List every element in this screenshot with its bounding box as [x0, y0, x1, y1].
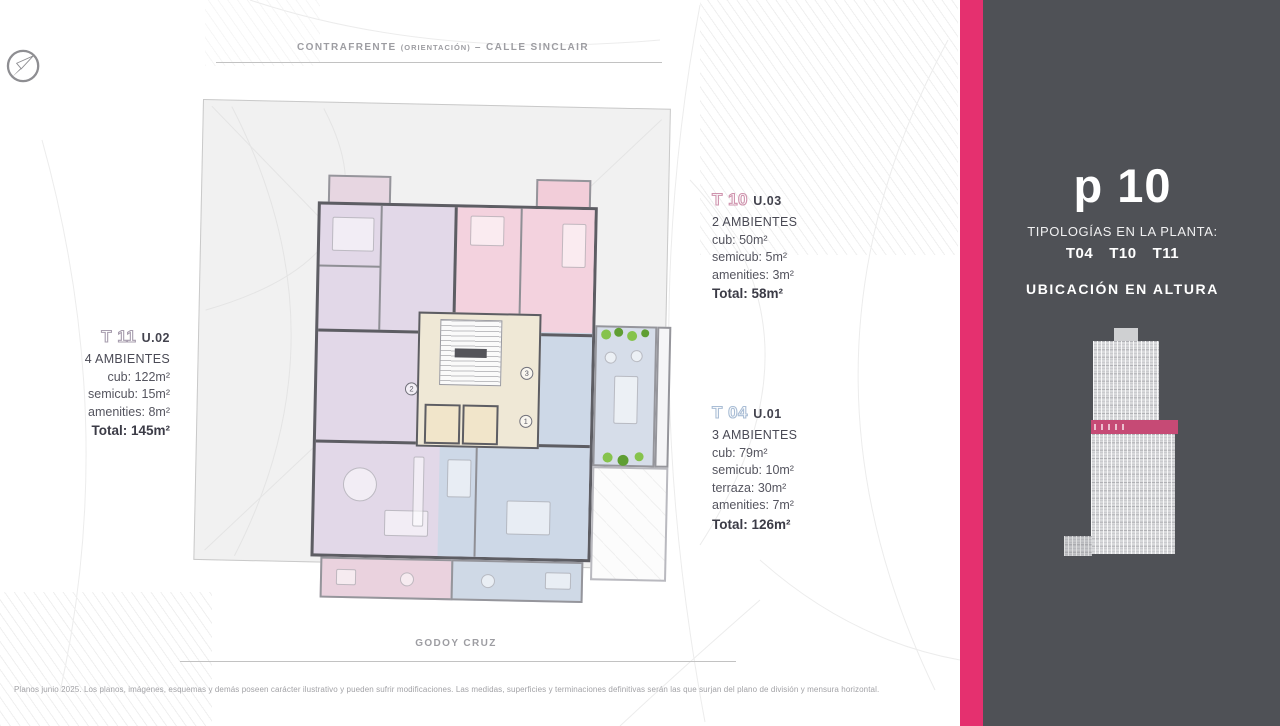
typology-codes: T04T10T11	[983, 245, 1262, 262]
floor-title: p 10	[983, 158, 1262, 213]
unit-area-line: cub: 79m²	[712, 445, 862, 463]
floor-plan: 2 3 1	[193, 99, 671, 570]
unit-label-t04: T 04 U.01 3 AMBIENTES cub: 79m² semicub:…	[712, 403, 862, 534]
balcony-chair	[400, 572, 414, 586]
unit-title: T 04 U.01	[712, 403, 862, 423]
hatch-top-label	[205, 0, 320, 66]
outdoor-chair	[631, 350, 643, 362]
street-label-contrafrente: CONTRAFRENTE (ORIENTACIÓN) – CALLE SINCL…	[0, 42, 886, 53]
unit-area-line: amenities: 7m²	[712, 497, 862, 515]
unit-label-t10: T 10 U.03 2 AMBIENTES cub: 50m² semicub:…	[712, 190, 862, 303]
accent-stripe	[960, 0, 983, 726]
room-divider	[378, 206, 382, 330]
side-panel: p 10 TIPOLOGÍAS EN LA PLANTA: T04T10T11 …	[983, 0, 1280, 726]
unit-total: Total: 145m²	[20, 421, 170, 440]
room-divider	[320, 264, 380, 267]
street-line-top	[216, 62, 662, 63]
unit-rooms: 2 AMBIENTES	[712, 214, 862, 232]
outdoor-chair	[605, 351, 617, 363]
building-outline: 2 3 1	[310, 201, 597, 562]
stair-landing	[455, 348, 487, 358]
kitchen-counter	[412, 456, 424, 526]
dining-table	[343, 467, 378, 502]
plant	[635, 452, 644, 461]
unit-area-line: terraza: 30m²	[712, 480, 862, 498]
height-location-title: UBICACIÓN EN ALTURA	[983, 281, 1262, 297]
unit-area-line: semicub: 15m²	[20, 386, 170, 404]
unit-number: U.02	[142, 331, 170, 345]
terrace-side-wall	[654, 327, 671, 468]
unit-area-line: amenities: 8m²	[20, 404, 170, 422]
hatch-bottom-left	[0, 592, 212, 726]
unit-code-t11: T 11	[101, 327, 136, 346]
unit-title: T 10 U.03	[712, 190, 862, 210]
outdoor-table	[613, 376, 638, 424]
elevator	[462, 405, 499, 446]
unit-area-line: cub: 122m²	[20, 369, 170, 387]
highlighted-floor-band	[1091, 420, 1178, 434]
building-elevation	[1064, 328, 1178, 558]
unit-total: Total: 126m²	[712, 515, 862, 534]
unit-rooms: 3 AMBIENTES	[712, 427, 862, 445]
tower-lower	[1091, 434, 1175, 554]
plant	[617, 455, 628, 466]
bed	[506, 500, 551, 535]
unit-area-line: semicub: 5m²	[712, 249, 862, 267]
street-suffix: – CALLE SINCLAIR	[471, 42, 589, 53]
building-annex	[1064, 536, 1092, 556]
street-label-godoy-cruz: GODOY CRUZ	[0, 638, 912, 649]
plant	[614, 328, 623, 337]
unit-area-line: semicub: 10m²	[712, 462, 862, 480]
typology-code-t04: T04	[1066, 245, 1093, 262]
plant	[601, 329, 611, 339]
bed	[332, 217, 375, 252]
unit-area-line: amenities: 3m²	[712, 267, 862, 285]
balcony-chair	[336, 569, 356, 585]
typology-code-t10: T10	[1109, 245, 1136, 262]
open-terrace	[590, 466, 668, 582]
bed	[470, 216, 505, 247]
tower-upper	[1093, 341, 1159, 421]
elevator	[424, 404, 461, 445]
unit-rooms: 4 AMBIENTES	[20, 351, 170, 369]
street-line-bottom	[180, 661, 736, 662]
unit-zone-t04-column	[536, 332, 592, 447]
balcony-bottom-left	[320, 557, 454, 601]
unit-label-t11: T 11 U.02 4 AMBIENTES cub: 122m² semicub…	[20, 327, 170, 440]
terrace-garden	[592, 325, 657, 467]
plant	[627, 331, 637, 341]
typology-code-t11: T11	[1153, 245, 1180, 262]
unit-number: U.01	[753, 407, 781, 421]
balcony-lounger	[545, 572, 571, 590]
table	[447, 459, 472, 497]
unit-code-t04: T 04	[712, 403, 748, 422]
typologies-title: TIPOLOGÍAS EN LA PLANTA:	[983, 224, 1262, 239]
plant	[641, 329, 649, 337]
balcony-chair	[481, 574, 495, 588]
stairs	[439, 319, 502, 386]
street-name: CONTRAFRENTE	[297, 42, 401, 53]
street-orientation-note: (ORIENTACIÓN)	[401, 43, 471, 52]
unit-number: U.03	[753, 194, 781, 208]
balcony-bottom-right	[451, 559, 584, 603]
unit-area-line: cub: 50m²	[712, 232, 862, 250]
roof-bulkhead	[1114, 328, 1138, 342]
core-zone	[416, 312, 542, 450]
unit-total: Total: 58m²	[712, 284, 862, 303]
sofa	[562, 224, 587, 268]
plant	[602, 452, 612, 462]
disclaimer-text: Planos junio 2025. Los planos, imágenes,…	[14, 685, 879, 694]
unit-title: T 11 U.02	[20, 327, 170, 347]
unit-code-t10: T 10	[712, 190, 748, 209]
